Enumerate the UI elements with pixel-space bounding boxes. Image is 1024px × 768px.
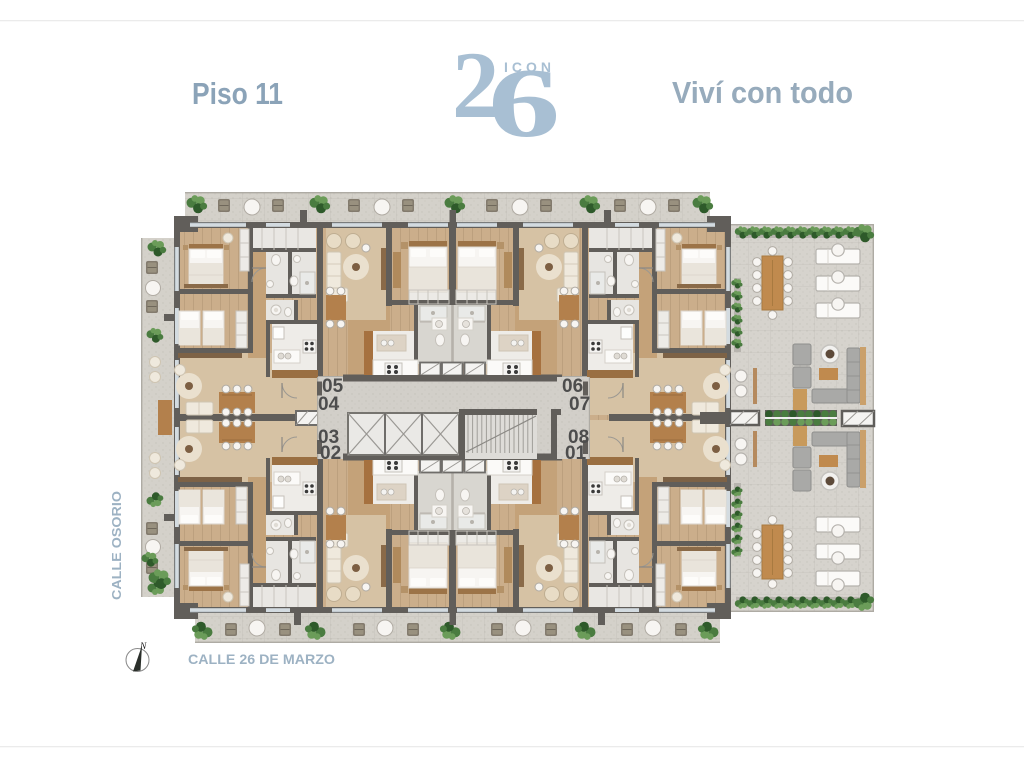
- svg-text:CALLE OSORIO: CALLE OSORIO: [109, 491, 124, 600]
- svg-text:02: 02: [320, 443, 341, 464]
- svg-text:N: N: [139, 642, 147, 652]
- svg-text:Piso 11: Piso 11: [192, 76, 283, 111]
- svg-text:07: 07: [569, 394, 590, 415]
- svg-text:Viví con todo: Viví con todo: [672, 75, 853, 110]
- svg-text:CALLE 26 DE MARZO: CALLE 26 DE MARZO: [188, 651, 335, 667]
- svg-text:01: 01: [565, 443, 587, 464]
- svg-text:04: 04: [318, 394, 340, 415]
- svg-text:ICON: ICON: [504, 59, 555, 75]
